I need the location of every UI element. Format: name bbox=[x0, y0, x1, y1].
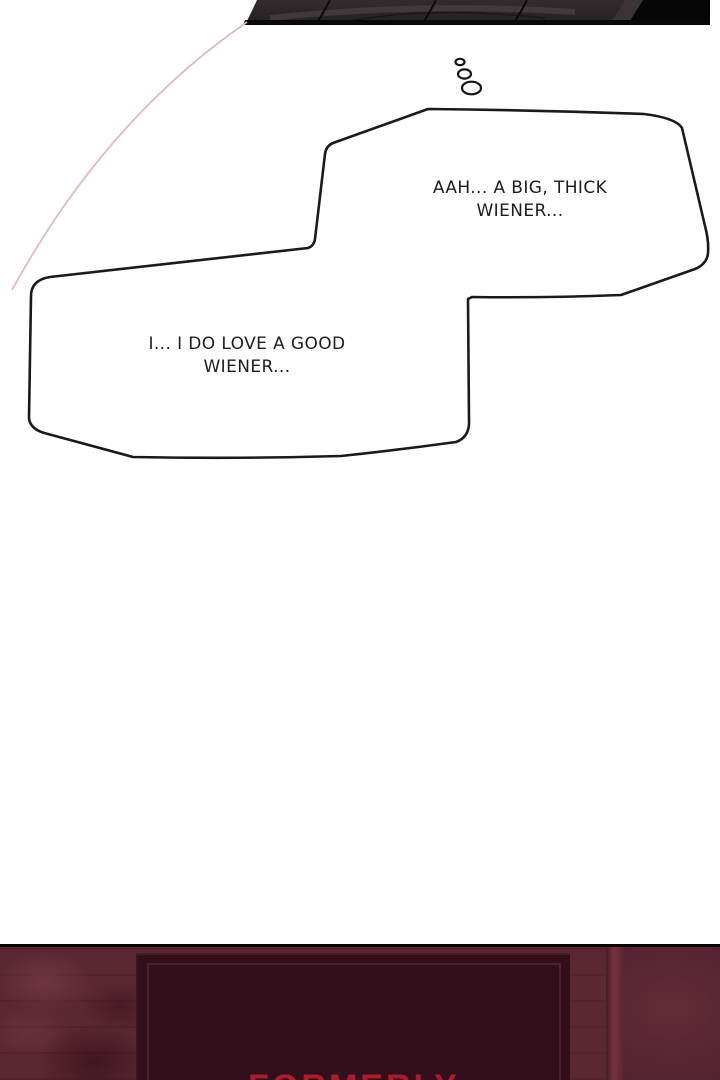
bubble-outline bbox=[29, 109, 708, 458]
thought-bubble-2-text: I... I DO LOVE A GOOD WIENER... bbox=[127, 333, 367, 379]
right-wall-section bbox=[623, 947, 720, 1080]
bubble-1-line-1: AAH... A BIG, THICK bbox=[400, 177, 640, 200]
store-sign: FORMERLY bbox=[136, 953, 570, 1080]
bottom-cropped-panel: FORMERLY bbox=[0, 944, 720, 1080]
sign-inner-frame bbox=[147, 963, 561, 1080]
webtoon-page: AAH... A BIG, THICK WIENER... I... I DO … bbox=[0, 0, 720, 1080]
bubble-1-line-2: WIENER... bbox=[400, 200, 640, 223]
sign-text: FORMERLY bbox=[138, 1068, 570, 1080]
thought-bubble-1-text: AAH... A BIG, THICK WIENER... bbox=[400, 177, 640, 223]
thought-trail-icon bbox=[456, 59, 482, 94]
thought-bubbles bbox=[0, 0, 720, 480]
bubble-2-line-2: WIENER... bbox=[127, 356, 367, 379]
bubble-2-line-1: I... I DO LOVE A GOOD bbox=[127, 333, 367, 356]
wall-pillar bbox=[606, 947, 623, 1080]
